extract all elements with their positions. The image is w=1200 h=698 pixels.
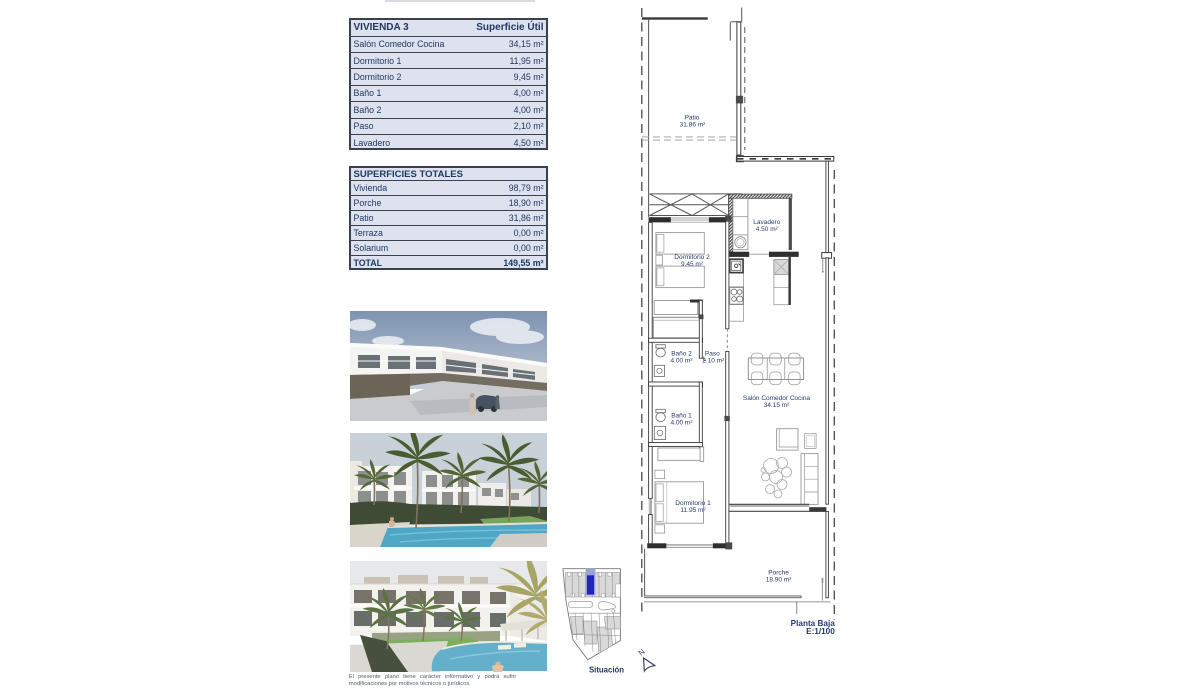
svg-text:11.95 m²: 11.95 m² xyxy=(680,507,706,514)
svg-text:Lavadero: Lavadero xyxy=(753,219,780,226)
svg-text:Porche: Porche xyxy=(768,569,789,576)
svg-text:Patio: Patio xyxy=(685,115,700,122)
svg-text:4.00 m²: 4.00 m² xyxy=(670,358,693,365)
svg-text:N: N xyxy=(637,647,647,657)
svg-text:2.10 m²: 2.10 m² xyxy=(702,358,725,365)
svg-text:Salón Comedor Cocina: Salón Comedor Cocina xyxy=(743,395,811,402)
svg-text:Dormitorio 1: Dormitorio 1 xyxy=(675,500,711,507)
svg-text:Dormitorio 2: Dormitorio 2 xyxy=(674,254,710,261)
svg-text:31.86 m²: 31.86 m² xyxy=(680,122,706,129)
svg-text:Situación: Situación xyxy=(589,665,624,674)
svg-text:4.50 m²: 4.50 m² xyxy=(756,226,779,233)
svg-text:18.90 m²: 18.90 m² xyxy=(766,576,792,583)
svg-text:9.45 m²: 9.45 m² xyxy=(681,261,704,268)
svg-text:Baño 1: Baño 1 xyxy=(671,413,692,420)
svg-text:Baño 2: Baño 2 xyxy=(671,351,692,358)
svg-text:Paso: Paso xyxy=(705,351,720,358)
svg-text:4.00 m²: 4.00 m² xyxy=(670,420,693,427)
svg-text:34.15 m²: 34.15 m² xyxy=(764,402,790,409)
svg-text:E:1/100: E:1/100 xyxy=(806,627,835,636)
